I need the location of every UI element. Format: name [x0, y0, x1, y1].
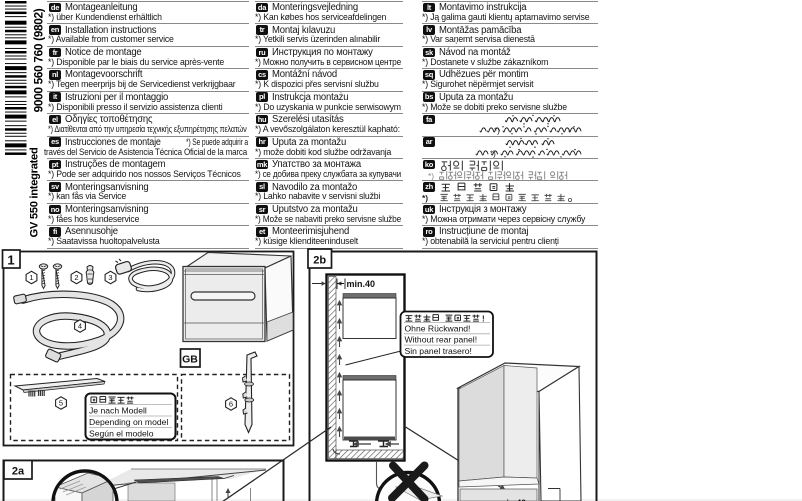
svg-text:Je nach Modell: Je nach Modell [89, 406, 147, 416]
svg-text:6: 6 [229, 400, 233, 409]
svg-text:min.40: min.40 [499, 497, 526, 501]
svg-text:*): *) [422, 193, 428, 203]
svg-text:Sin panel trasero!: Sin panel trasero! [405, 346, 472, 356]
svg-text:Según el modelo: Según el modelo [89, 428, 154, 438]
svg-text:!: ! [482, 315, 485, 324]
svg-text:min.40: min.40 [347, 279, 376, 289]
svg-text:3: 3 [108, 273, 112, 282]
svg-text:*): *) [490, 149, 496, 158]
svg-text:1: 1 [29, 273, 33, 282]
svg-text:Without rear panel!: Without rear panel! [405, 335, 478, 345]
svg-text:*): *) [428, 171, 434, 181]
svg-text:Ohne Rückwand!: Ohne Rückwand! [405, 323, 471, 333]
svg-text:*): *) [494, 126, 500, 135]
svg-text:5: 5 [59, 399, 63, 408]
svg-text:GB: GB [182, 354, 198, 366]
svg-text:2b: 2b [313, 255, 326, 267]
svg-text:Depending on model: Depending on model [89, 417, 168, 427]
svg-text:2: 2 [74, 273, 78, 282]
svg-text:1: 1 [7, 253, 14, 268]
svg-text:4: 4 [78, 322, 82, 331]
svg-text:2a: 2a [12, 466, 25, 478]
